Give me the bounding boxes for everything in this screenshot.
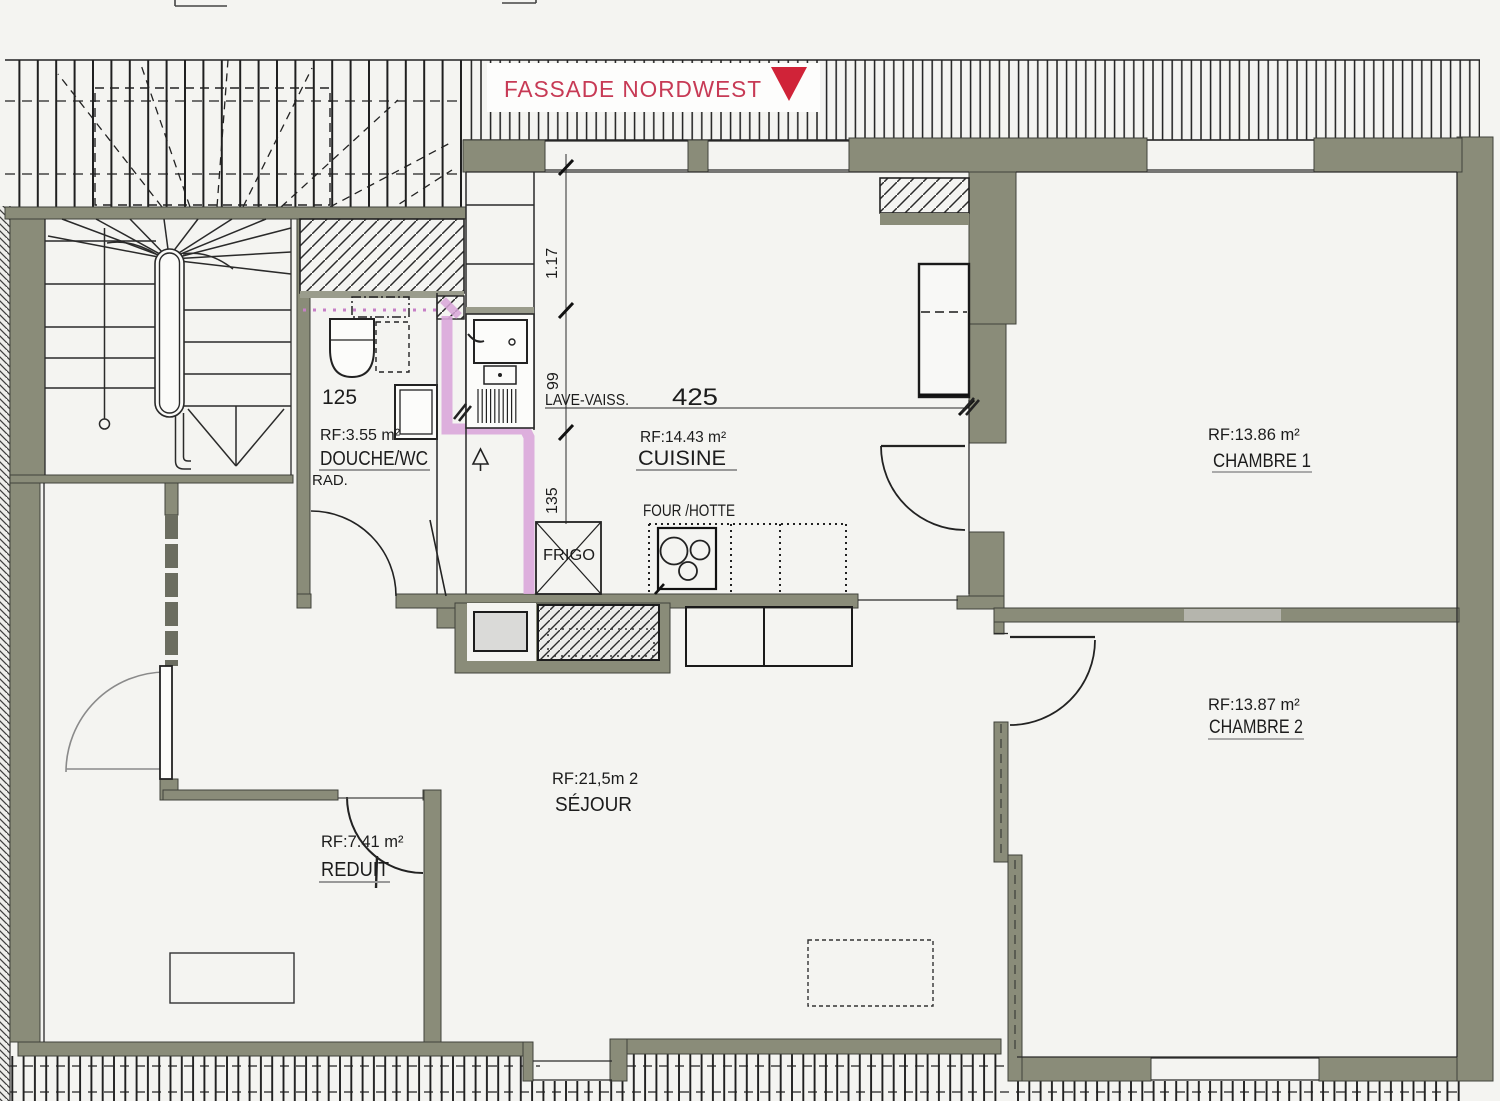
- svg-text:RAD.: RAD.: [312, 472, 348, 489]
- svg-text:CUISINE: CUISINE: [638, 447, 726, 470]
- svg-text:FOUR /HOTTE: FOUR /HOTTE: [643, 501, 735, 520]
- svg-text:REDUIT: REDUIT: [321, 859, 389, 881]
- svg-text:RF:3.55 m²: RF:3.55 m²: [320, 427, 401, 444]
- svg-text:SÉJOUR: SÉJOUR: [555, 793, 632, 816]
- svg-text:CHAMBRE 1: CHAMBRE 1: [1213, 451, 1311, 472]
- svg-text:RF:21,5m 2: RF:21,5m 2: [552, 770, 638, 788]
- svg-text:DOUCHE/WC: DOUCHE/WC: [320, 448, 428, 470]
- svg-text:RF:7.41 m²: RF:7.41 m²: [321, 833, 404, 851]
- svg-text:1.17: 1.17: [544, 248, 561, 279]
- svg-text:99: 99: [545, 372, 562, 390]
- svg-text:RF:14.43 m²: RF:14.43 m²: [640, 429, 726, 446]
- svg-text:135: 135: [544, 487, 561, 514]
- svg-text:CHAMBRE 2: CHAMBRE 2: [1209, 717, 1303, 738]
- svg-text:LAVE-VAISS.: LAVE-VAISS.: [545, 392, 629, 409]
- svg-text:FRIGO: FRIGO: [543, 547, 595, 564]
- svg-text:425: 425: [672, 384, 718, 411]
- svg-text:FASSADE NORDWEST: FASSADE NORDWEST: [504, 76, 762, 102]
- svg-text:RF:13.87 m²: RF:13.87 m²: [1208, 696, 1300, 714]
- svg-text:RF:13.86 m²: RF:13.86 m²: [1208, 426, 1300, 444]
- svg-text:125: 125: [322, 386, 357, 409]
